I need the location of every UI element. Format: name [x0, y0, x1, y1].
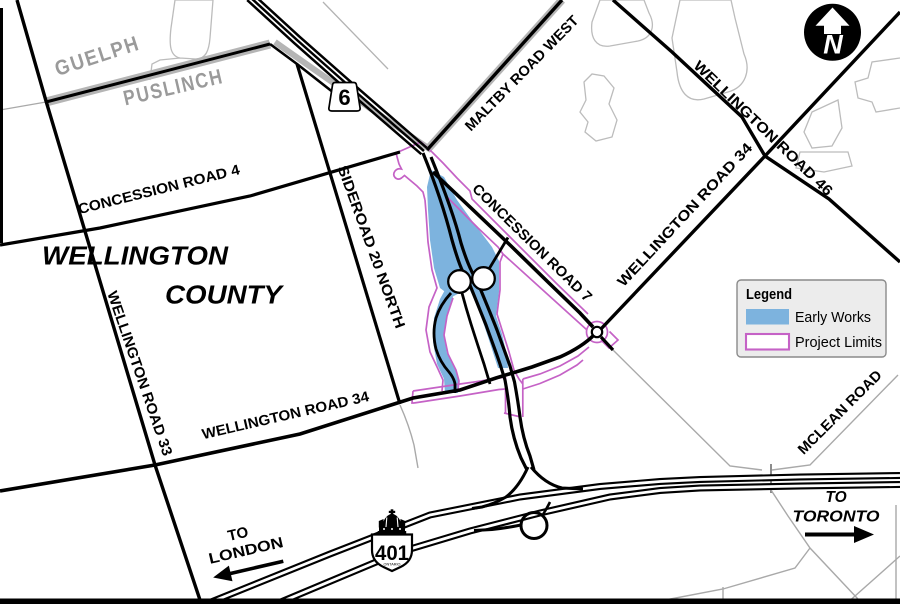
svg-text:TORONTO: TORONTO [793, 509, 880, 526]
svg-text:ONTARIO: ONTARIO [383, 563, 400, 567]
svg-text:TO: TO [825, 489, 846, 506]
svg-text:Legend: Legend [746, 286, 792, 303]
svg-text:Project Limits: Project Limits [795, 335, 882, 351]
svg-text:Early Works: Early Works [795, 310, 871, 326]
svg-text:COUNTY: COUNTY [165, 280, 285, 310]
svg-text:WELLINGTON: WELLINGTON [42, 241, 229, 271]
svg-text:6: 6 [338, 85, 350, 110]
svg-text:N: N [823, 30, 843, 60]
